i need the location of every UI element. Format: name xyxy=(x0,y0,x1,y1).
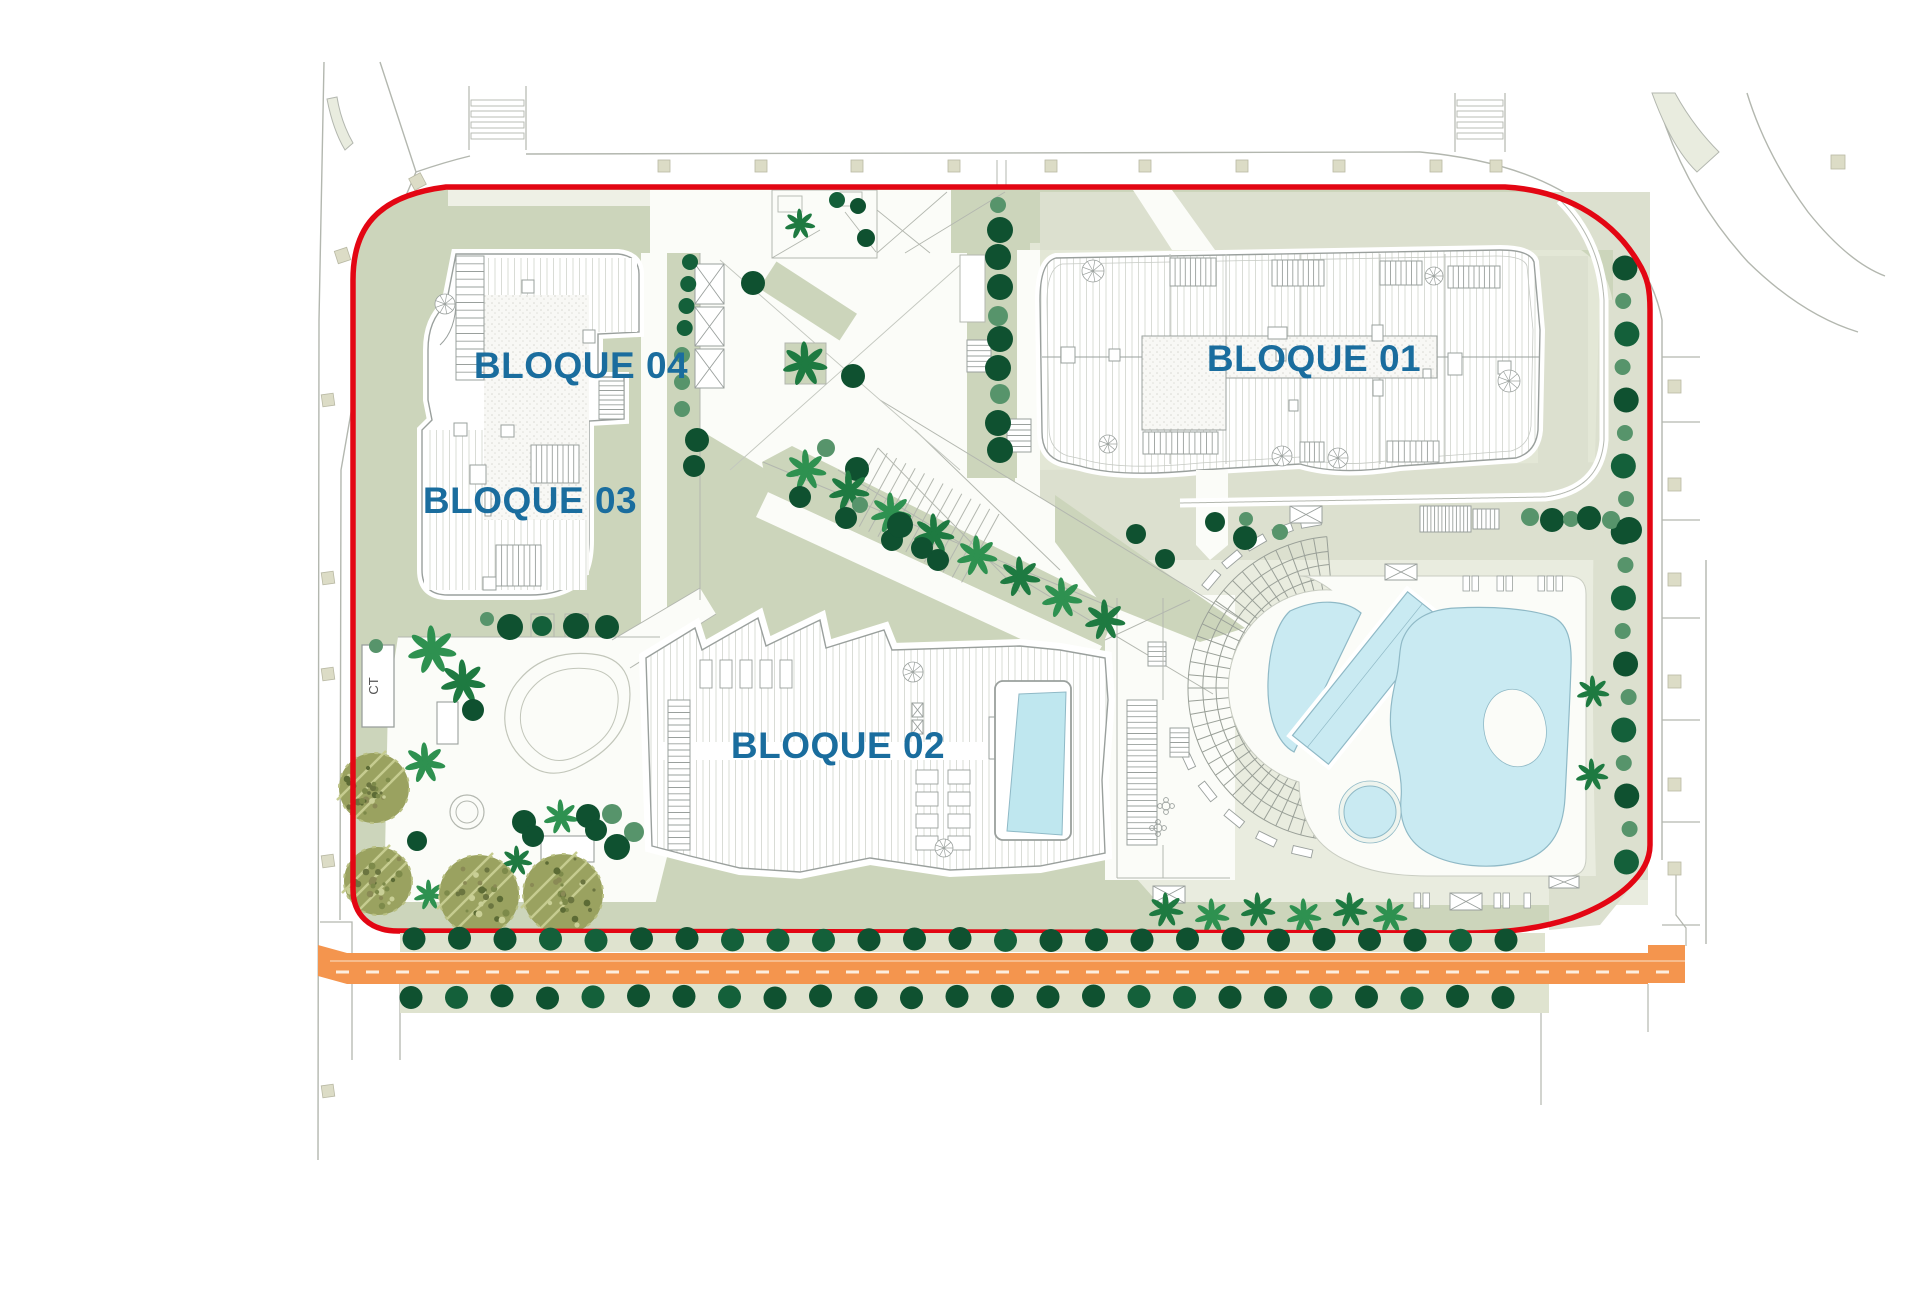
svg-text:BLOQUE 01: BLOQUE 01 xyxy=(1207,338,1421,379)
svg-text:CT: CT xyxy=(366,677,381,694)
svg-text:BLOQUE 03: BLOQUE 03 xyxy=(423,480,637,521)
svg-text:BLOQUE 02: BLOQUE 02 xyxy=(731,725,945,766)
svg-text:BLOQUE 04: BLOQUE 04 xyxy=(474,345,688,386)
